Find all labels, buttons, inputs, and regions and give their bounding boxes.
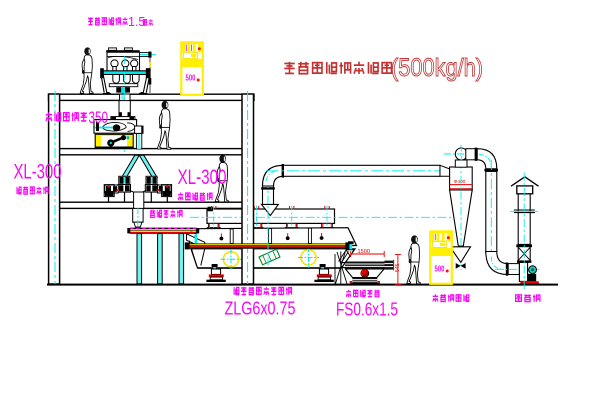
svg-text:XL-300: XL-300 (14, 160, 62, 184)
svg-text:350: 350 (89, 108, 109, 127)
svg-text:500: 500 (186, 73, 196, 83)
svg-text:545: 545 (395, 263, 401, 272)
svg-text:ZLG6x0.75: ZLG6x0.75 (225, 299, 296, 319)
svg-text:XL-300: XL-300 (178, 165, 227, 189)
svg-text:500: 500 (435, 264, 445, 274)
svg-text:(500kg/h): (500kg/h) (391, 54, 483, 82)
svg-text:Φ400: Φ400 (454, 179, 466, 185)
svg-text:1500: 1500 (358, 249, 370, 255)
svg-text:FS0.6x1.5: FS0.6x1.5 (336, 300, 398, 320)
